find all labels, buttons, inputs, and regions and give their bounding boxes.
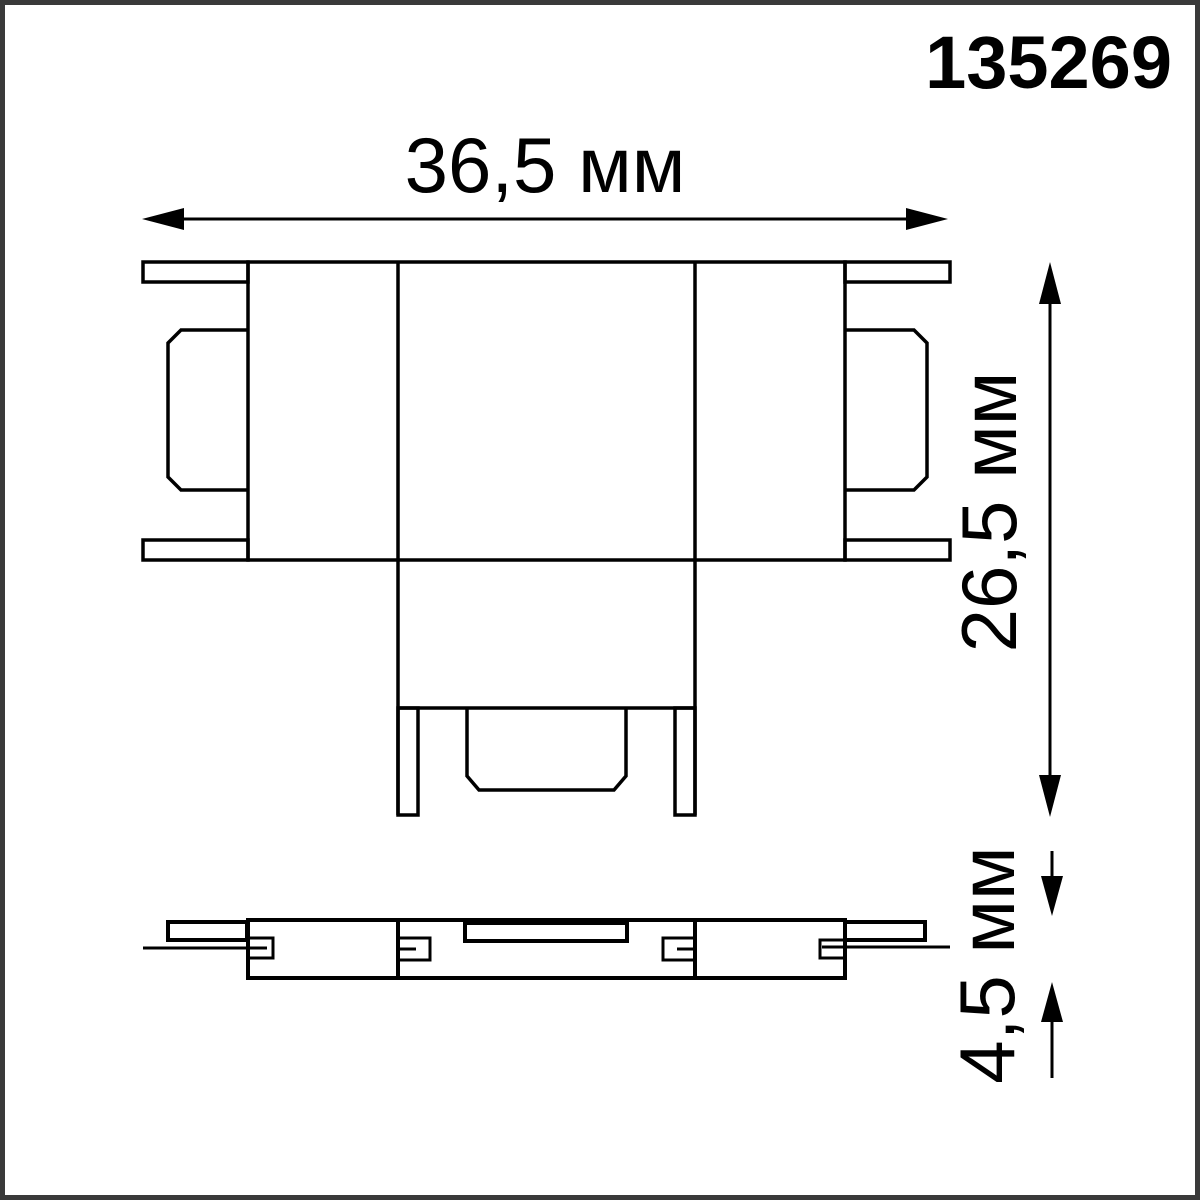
bottom-right-tab bbox=[845, 540, 950, 560]
width-dimension: 36,5 мм bbox=[142, 121, 948, 230]
side-view-right-tab bbox=[845, 922, 925, 940]
stem-contact-plug bbox=[467, 708, 626, 790]
product-code: 135269 bbox=[925, 21, 1172, 104]
technical-drawing-canvas: 135269 bbox=[0, 0, 1200, 1200]
side-view-body bbox=[248, 920, 845, 978]
top-view-drawing bbox=[143, 262, 950, 815]
thickness-dimension: 4,5 мм bbox=[943, 846, 1063, 1083]
height-arrow-top-icon bbox=[1039, 262, 1061, 304]
width-arrow-left-icon bbox=[142, 208, 184, 230]
side-view-drawing bbox=[143, 920, 950, 978]
clip-right-outer bbox=[820, 940, 845, 958]
right-contact-plug bbox=[845, 330, 927, 490]
stem-right-leg bbox=[675, 708, 695, 815]
top-left-tab bbox=[143, 262, 248, 282]
height-arrow-bottom-icon bbox=[1039, 775, 1061, 817]
top-view-body bbox=[248, 262, 845, 560]
side-view-slot bbox=[465, 923, 627, 941]
top-right-tab bbox=[845, 262, 950, 282]
height-dimension-label: 26,5 мм bbox=[945, 372, 1033, 653]
left-contact-plug bbox=[168, 330, 248, 490]
side-view-left-tab bbox=[168, 922, 247, 940]
thickness-dimension-label: 4,5 мм bbox=[943, 846, 1031, 1083]
thickness-arrow-down-icon bbox=[1041, 876, 1063, 916]
bottom-left-tab bbox=[143, 540, 248, 560]
width-dimension-label: 36,5 мм bbox=[405, 121, 686, 209]
stem-left-leg bbox=[398, 708, 418, 815]
height-dimension: 26,5 мм bbox=[945, 262, 1061, 817]
width-arrow-right-icon bbox=[906, 208, 948, 230]
